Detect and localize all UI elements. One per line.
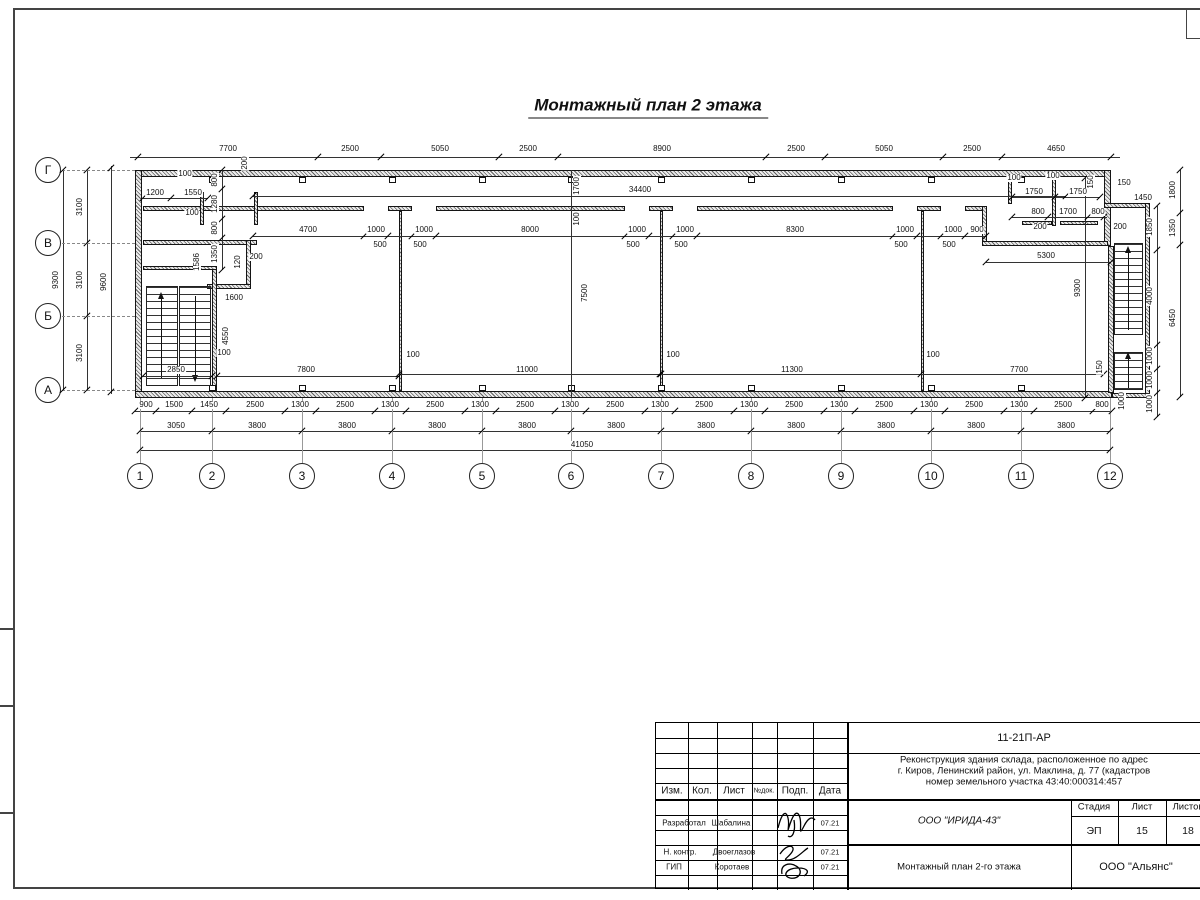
dim-label: 1586 [193, 252, 201, 272]
dim-line [87, 170, 88, 390]
wall [135, 170, 1111, 177]
dim-label: 3100 [76, 343, 84, 363]
pier-mark [748, 385, 755, 391]
pier-mark [389, 177, 396, 183]
stair-arrow-head [158, 292, 164, 299]
axis-circle: В [35, 230, 61, 256]
dim-label: 3800 [247, 422, 267, 430]
dim-label: 1750 [1024, 188, 1044, 196]
wall [135, 170, 142, 398]
tb-sheet-value: 15 [1136, 825, 1148, 837]
frame-top [13, 8, 1200, 10]
dim-label: 2500 [874, 401, 894, 409]
dim-tick [1153, 413, 1160, 420]
wall [246, 240, 251, 288]
tb-role-ncontr: Н. контр. [663, 848, 696, 857]
tb-sheets-label: Листов [1173, 802, 1200, 813]
axis-circle: 1 [127, 463, 153, 489]
dim-label: 8900 [652, 145, 672, 153]
dim-label: 7500 [581, 283, 589, 303]
tb-col-izm: Изм. [661, 786, 682, 797]
dim-label: 2500 [786, 145, 806, 153]
tb-org: ООО "ИРИДА-43" [918, 816, 1000, 827]
wall [921, 211, 924, 391]
dim-label: 100 [216, 349, 231, 357]
dim-label: 11300 [780, 366, 804, 374]
dim-label: 7700 [218, 145, 238, 153]
dim-label: 100 [405, 351, 420, 359]
dim-label: 1300 [380, 401, 400, 409]
wall [982, 241, 1108, 246]
dim-label: 4700 [298, 226, 318, 234]
dim-label: 1450 [1133, 194, 1153, 202]
dim-tick [1176, 393, 1183, 400]
tb-name-gip: Коротаев [715, 863, 750, 872]
dim-label: 1200 [145, 189, 165, 197]
wall [143, 240, 257, 245]
dim-line [140, 450, 1110, 451]
dim-line [921, 374, 1104, 375]
dim-line [63, 170, 64, 390]
tb-col-list: Лист [723, 786, 745, 797]
dim-line [140, 431, 1110, 432]
dim-label: 1300 [829, 401, 849, 409]
pier-mark [479, 177, 486, 183]
dim-label: 1000 [1118, 391, 1126, 411]
dim-label: 2500 [245, 401, 265, 409]
dim-label: 200 [1032, 223, 1047, 231]
frame-binding-tick [0, 628, 13, 630]
dim-label: 2500 [694, 401, 714, 409]
tb-project-line2: г. Киров, Ленинский район, ул. Маклина, … [898, 766, 1150, 777]
dim-line [661, 374, 921, 375]
dim-label: 1500 [164, 401, 184, 409]
dim-line [1157, 206, 1158, 417]
dim-label: 11000 [515, 366, 539, 374]
wall [135, 391, 1112, 398]
stair-arrow-head [1125, 246, 1131, 253]
dim-label: 41050 [570, 441, 594, 449]
dim-label: 9600 [100, 272, 108, 292]
dim-label: 2500 [425, 401, 445, 409]
title-block: Изм. Кол. Лист №док. Подп. Дата Разработ… [655, 722, 1200, 889]
dim-label: 1300 [470, 401, 490, 409]
signature-dev [774, 806, 818, 840]
dim-line [143, 198, 208, 199]
dim-label: 200 [248, 253, 263, 261]
dim-label: 120 [234, 254, 242, 269]
axis-circle: 12 [1097, 463, 1123, 489]
dim-label: 800 [211, 220, 219, 235]
wall [143, 266, 217, 270]
dim-label: 1550 [183, 189, 203, 197]
dim-label: 8300 [785, 226, 805, 234]
tb-project-line1: Реконструкция здания склада, расположенн… [900, 755, 1148, 766]
tb-col-ndok: №док. [754, 788, 775, 795]
stair-arrow [195, 296, 196, 378]
dim-label: 1000 [895, 226, 915, 234]
dim-label: 1000 [1146, 346, 1154, 366]
dim-label: 100 [184, 209, 199, 217]
dim-label: 2500 [962, 145, 982, 153]
dim-label: 500 [673, 241, 688, 249]
pier-mark [838, 177, 845, 183]
dim-label: 2500 [335, 401, 355, 409]
dim-label: 900 [969, 226, 984, 234]
dim-label: 9300 [52, 270, 60, 290]
pier-mark [658, 177, 665, 183]
tb-role-gip: ГИП [666, 863, 682, 872]
dim-line [130, 157, 1120, 158]
dim-label: 1800 [1169, 180, 1177, 200]
dim-label: 1350 [211, 244, 219, 264]
pier-mark [658, 385, 665, 391]
axis-circle: 8 [738, 463, 764, 489]
wall [399, 211, 402, 391]
dim-label: 8000 [520, 226, 540, 234]
dim-label: 100 [177, 170, 192, 178]
dim-label: 1000 [366, 226, 386, 234]
dim-label: 1000 [414, 226, 434, 234]
dim-label: 3800 [517, 422, 537, 430]
dim-label: 200 [241, 155, 249, 170]
wall [1052, 178, 1056, 226]
dim-label: 100 [925, 351, 940, 359]
frame-corner-box [1186, 10, 1200, 39]
axis-leader [62, 390, 135, 391]
axis-circle: 9 [828, 463, 854, 489]
dim-label: 1000 [1146, 394, 1154, 414]
dim-label: 1700 [1058, 208, 1078, 216]
dim-line [986, 262, 1111, 263]
tb-col-kol: Кол. [692, 786, 712, 797]
dim-label: 4650 [1046, 145, 1066, 153]
dim-label: 1300 [739, 401, 759, 409]
tb-col-podp: Подп. [782, 786, 809, 797]
dim-label: 100 [1006, 174, 1021, 182]
dim-label: 1600 [224, 294, 244, 302]
tb-company: ООО "Альянс" [1099, 861, 1173, 873]
dim-label: 3100 [76, 270, 84, 290]
dim-label: 1000 [943, 226, 963, 234]
dim-tick [1096, 193, 1103, 200]
tb-date-dev: 07.21 [821, 819, 840, 828]
axis-circle: А [35, 377, 61, 403]
stair-arrow [1128, 356, 1129, 388]
dim-label: 1300 [290, 401, 310, 409]
dim-label: 34400 [628, 186, 652, 194]
dim-line [111, 166, 112, 394]
pier-mark [928, 177, 935, 183]
wall [436, 206, 625, 211]
wall [1060, 221, 1098, 225]
dim-label: 3800 [337, 422, 357, 430]
dim-line [217, 376, 399, 377]
dim-label: 500 [412, 241, 427, 249]
dim-label: 800 [1030, 208, 1045, 216]
axis-leader [62, 170, 135, 171]
dim-line [222, 170, 223, 270]
pier-mark [299, 177, 306, 183]
dim-label: 3800 [786, 422, 806, 430]
tb-project-line3: номер земельного участка 43:40:000314:45… [926, 777, 1122, 788]
dim-label: 100 [1045, 172, 1060, 180]
axis-circle: Г [35, 157, 61, 183]
dim-line [143, 376, 212, 377]
dim-label: 4550 [222, 326, 230, 346]
dim-line [253, 196, 1066, 197]
pier-mark [928, 385, 935, 391]
tb-date-ncontr: 07.21 [821, 848, 840, 857]
dim-label: 1300 [919, 401, 939, 409]
stair-arrow [161, 296, 162, 378]
dim-label: 2500 [605, 401, 625, 409]
dim-label: 2500 [964, 401, 984, 409]
drawing-sheet: { "drawing_title": "Монтажный план 2 эта… [0, 0, 1200, 900]
dim-line [1085, 178, 1086, 398]
dim-label: 2850 [166, 366, 186, 374]
tb-doc-code: 11-21П-АР [997, 732, 1051, 744]
dim-label: 5050 [874, 145, 894, 153]
dim-line [1012, 217, 1107, 218]
dim-label: 800 [1090, 208, 1105, 216]
axis-circle: 11 [1008, 463, 1034, 489]
wall [697, 206, 893, 211]
dim-label: 2500 [340, 145, 360, 153]
frame-left [13, 8, 15, 889]
wall [253, 206, 364, 211]
dim-label: 150 [1116, 179, 1131, 187]
axis-circle: 4 [379, 463, 405, 489]
axis-circle: 10 [918, 463, 944, 489]
dim-label: 4000 [1146, 286, 1154, 306]
dim-label: 500 [941, 241, 956, 249]
axis-circle: 2 [199, 463, 225, 489]
dim-label: 3100 [76, 197, 84, 217]
pier-mark [748, 177, 755, 183]
dim-label: 150 [1087, 174, 1095, 189]
axis-circle: 7 [648, 463, 674, 489]
pier-mark [479, 385, 486, 391]
dim-label: 500 [372, 241, 387, 249]
dim-label: 3800 [966, 422, 986, 430]
dim-label: 1700 [573, 176, 581, 196]
pier-mark [838, 385, 845, 391]
pier-mark [299, 385, 306, 391]
tb-stage-label: Стадия [1078, 802, 1110, 813]
axis-leader [62, 243, 135, 244]
dim-label: 3800 [427, 422, 447, 430]
dim-label: 3800 [876, 422, 896, 430]
dim-label: 1350 [1169, 218, 1177, 238]
dim-label: 1280 [211, 194, 219, 214]
dim-tick [218, 266, 225, 273]
tb-name-dev: Шабалина [712, 819, 751, 828]
dim-label: 100 [573, 211, 581, 226]
tb-sheet-label: Лист [1132, 802, 1153, 813]
stair-arrow [1128, 250, 1129, 330]
frame-binding-tick [0, 812, 13, 814]
tb-name-ncontr: Двоеглазов [713, 848, 756, 857]
frame-binding-tick [0, 705, 13, 707]
dim-label: 1300 [560, 401, 580, 409]
dim-line [399, 374, 660, 375]
axis-leader [62, 316, 135, 317]
dim-label: 1450 [199, 401, 219, 409]
dim-label: 6450 [1169, 308, 1177, 328]
dim-label: 1000 [1146, 370, 1154, 390]
tb-role-dev: Разработал [662, 819, 706, 828]
dim-label: 800 [1094, 401, 1109, 409]
tb-date-gip: 07.21 [821, 863, 840, 872]
dim-label: 5050 [430, 145, 450, 153]
dim-label: 1300 [1009, 401, 1029, 409]
signature-ncontr-gip [774, 840, 818, 884]
tb-sheet-title: Монтажный план 2-го этажа [897, 862, 1021, 873]
dim-label: 1000 [675, 226, 695, 234]
dim-line [1012, 197, 1100, 198]
dim-label: 5300 [1036, 252, 1056, 260]
dim-label: 200 [1112, 223, 1127, 231]
pier-mark [1018, 385, 1025, 391]
dim-label: 100 [665, 351, 680, 359]
dim-label: 3800 [696, 422, 716, 430]
tb-sheets-value: 18 [1182, 825, 1194, 837]
dim-label: 3800 [606, 422, 626, 430]
dim-label: 2500 [518, 145, 538, 153]
stair-arrow-head [1125, 352, 1131, 359]
dim-label: 2500 [784, 401, 804, 409]
dim-label: 3050 [166, 422, 186, 430]
tb-stage-value: ЭП [1086, 825, 1101, 837]
wall [1104, 203, 1150, 208]
plan-title: Монтажный план 2 этажа [528, 96, 768, 119]
wall [660, 211, 663, 391]
dim-label: 500 [893, 241, 908, 249]
dim-label: 900 [138, 401, 153, 409]
dim-label: 7700 [1009, 366, 1029, 374]
dim-label: 2500 [515, 401, 535, 409]
dim-label: 800 [211, 172, 219, 187]
dim-label: 7800 [296, 366, 316, 374]
dim-label: 1300 [650, 401, 670, 409]
dim-label: 2500 [1053, 401, 1073, 409]
axis-circle: 5 [469, 463, 495, 489]
axis-circle: 3 [289, 463, 315, 489]
dim-label: 150 [1096, 359, 1104, 374]
dim-line [1180, 170, 1181, 397]
tb-col-data: Дата [819, 786, 841, 797]
dim-label: 500 [625, 241, 640, 249]
dim-label: 3800 [1056, 422, 1076, 430]
dim-label: 1750 [1068, 188, 1088, 196]
pier-mark [389, 385, 396, 391]
axis-circle: Б [35, 303, 61, 329]
axis-circle: 6 [558, 463, 584, 489]
dim-label: 1000 [627, 226, 647, 234]
dim-label: 1850 [1146, 217, 1154, 237]
dim-label: 9300 [1074, 278, 1082, 298]
